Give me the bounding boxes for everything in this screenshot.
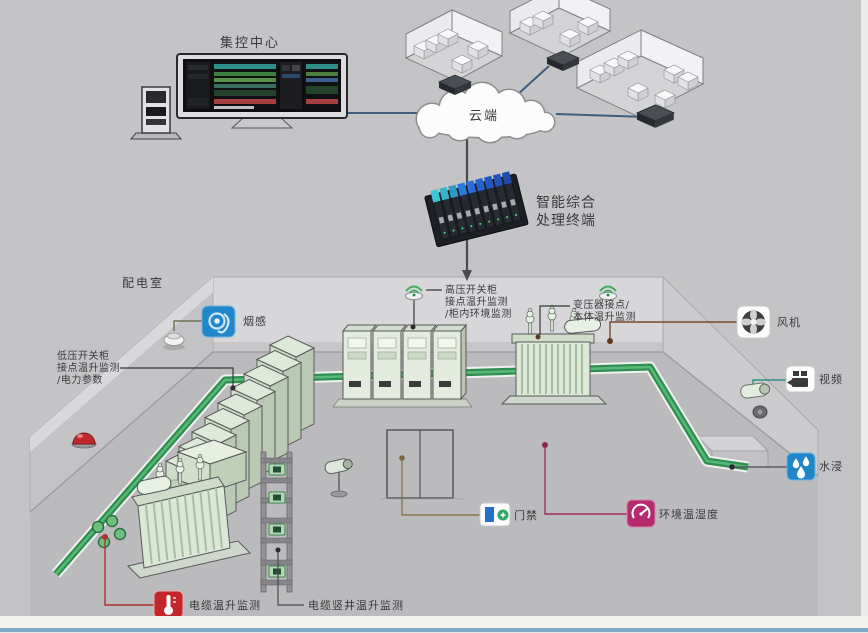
- svg-text:变压器接点/: 变压器接点/: [573, 298, 629, 311]
- video-label: 视频: [819, 372, 843, 386]
- env-icon: [627, 500, 655, 527]
- cloud-label: 云端: [469, 109, 499, 124]
- svg-text:/电力参数: /电力参数: [57, 373, 103, 386]
- room-label: 配电室: [122, 275, 164, 290]
- bottom-white-strip: [0, 616, 868, 628]
- control-center-monitor: [177, 54, 347, 128]
- svg-text:接点温升监测: 接点温升监测: [445, 295, 508, 308]
- smoke-icon: [202, 306, 235, 337]
- door-access-icon: [480, 503, 510, 526]
- system-topology-diagram: 云端: [0, 0, 868, 633]
- svg-text:接点温升监测: 接点温升监测: [57, 361, 120, 374]
- cable-shaft-label: 电缆竖井温升监测: [308, 598, 404, 612]
- svg-text:高压开关柜: 高压开关柜: [445, 283, 498, 296]
- svg-text:低压开关柜: 低压开关柜: [57, 349, 110, 362]
- cable-temp-label: 电缆温升监测: [189, 599, 261, 612]
- svg-text:本体温升监测: 本体温升监测: [573, 310, 636, 323]
- tx-label: 变压器接点/ 本体温升监测: [573, 298, 636, 323]
- control-center-label: 集控中心: [220, 35, 280, 51]
- fan-icon: [737, 306, 770, 338]
- fan-label: 风机: [777, 315, 801, 329]
- video-icon: [786, 366, 815, 392]
- terminal-label-line2: 处理终端: [536, 213, 596, 229]
- smoke-label: 烟感: [243, 314, 267, 328]
- water-label: 水浸: [819, 460, 843, 473]
- right-edge-strip: [861, 0, 868, 620]
- svg-text:/柜内环境监测: /柜内环境监测: [445, 307, 512, 320]
- env-label: 环境温湿度: [659, 507, 719, 521]
- bottom-blue-line: [0, 628, 868, 632]
- door-label: 门禁: [514, 508, 538, 522]
- hv-switchgear: [333, 325, 472, 407]
- water-icon: [787, 453, 815, 480]
- cable-ladder: [261, 452, 292, 592]
- terminal-label-line1: 智能综合: [536, 195, 596, 211]
- monitor-stand: [232, 118, 292, 128]
- cable-temp-icon: [154, 591, 183, 618]
